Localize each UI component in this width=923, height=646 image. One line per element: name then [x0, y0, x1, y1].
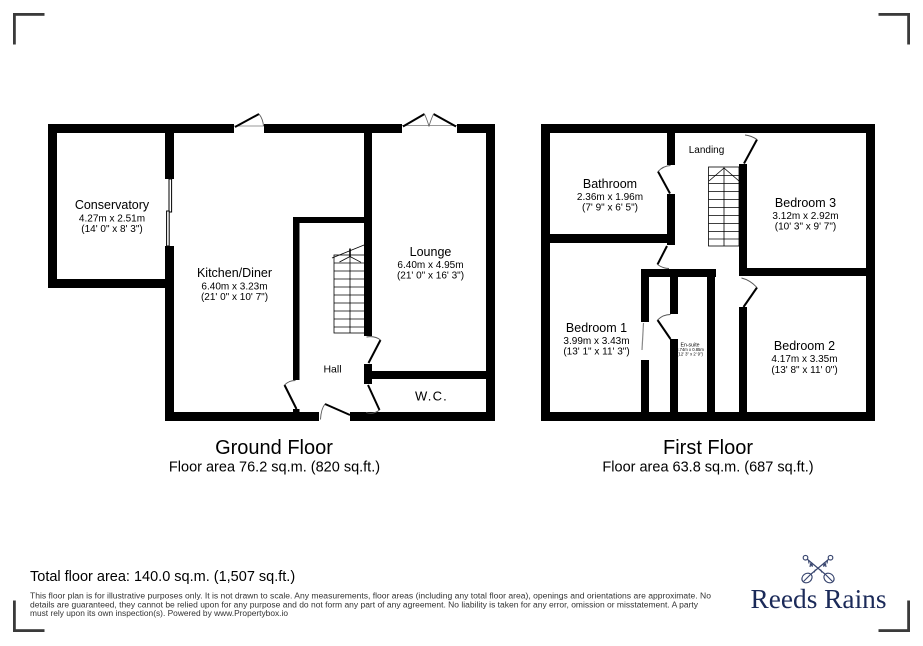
svg-text:3.12m x 2.92m: 3.12m x 2.92m: [772, 211, 838, 222]
svg-text:(13' 1" x 11' 3"): (13' 1" x 11' 3"): [563, 347, 629, 358]
svg-text:Bedroom 1: Bedroom 1: [566, 321, 627, 335]
svg-text:must rely upon its own inspect: must rely upon its own inspection(s). Po…: [30, 609, 289, 618]
svg-text:Conservatory: Conservatory: [75, 198, 150, 212]
svg-text:(12' 3" x 2' 9"): (12' 3" x 2' 9"): [677, 352, 703, 357]
svg-text:Landing: Landing: [689, 145, 725, 156]
svg-text:Bedroom 2: Bedroom 2: [774, 339, 835, 353]
svg-text:(13' 8" x 11' 0"): (13' 8" x 11' 0"): [771, 365, 837, 376]
svg-text:Total floor area: 140.0 sq.m.: Total floor area: 140.0 sq.m. (1,507 sq.…: [30, 569, 295, 585]
svg-text:6.40m x 3.23m: 6.40m x 3.23m: [201, 282, 267, 293]
svg-text:Kitchen/Diner: Kitchen/Diner: [197, 266, 272, 280]
svg-text:6.40m x 4.95m: 6.40m x 4.95m: [397, 260, 463, 271]
svg-text:(7' 9" x 6' 5"): (7' 9" x 6' 5"): [582, 203, 638, 214]
svg-text:First Floor: First Floor: [663, 437, 753, 459]
svg-text:(21' 0" x 10' 7"): (21' 0" x 10' 7"): [201, 292, 268, 303]
svg-text:Hall: Hall: [323, 364, 341, 376]
svg-text:W.C.: W.C.: [415, 389, 448, 404]
svg-text:(14' 0" x 8' 3"): (14' 0" x 8' 3"): [81, 224, 143, 235]
svg-text:2.36m x 1.96m: 2.36m x 1.96m: [577, 192, 643, 203]
svg-text:4.27m x 2.51m: 4.27m x 2.51m: [79, 214, 145, 225]
svg-text:details are guaranteed, they c: details are guaranteed, they cannot be r…: [30, 600, 698, 609]
svg-text:Ground Floor: Ground Floor: [215, 437, 333, 459]
svg-text:Bedroom 3: Bedroom 3: [775, 196, 836, 210]
svg-text:(21' 0" x 16' 3"): (21' 0" x 16' 3"): [397, 271, 464, 282]
svg-text:Floor area 63.8 sq.m. (687 sq.: Floor area 63.8 sq.m. (687 sq.ft.): [602, 460, 813, 476]
svg-text:3.99m x 3.43m: 3.99m x 3.43m: [563, 336, 629, 347]
svg-text:Bathroom: Bathroom: [583, 177, 637, 191]
svg-text:4.17m x 3.35m: 4.17m x 3.35m: [771, 354, 837, 365]
svg-text:(10' 3" x 9' 7"): (10' 3" x 9' 7"): [775, 222, 837, 233]
svg-text:This floor plan is for illustr: This floor plan is for illustrative purp…: [30, 592, 712, 601]
svg-text:Floor area 76.2 sq.m. (820 sq.: Floor area 76.2 sq.m. (820 sq.ft.): [169, 460, 380, 476]
svg-text:Reeds Rains: Reeds Rains: [751, 583, 887, 614]
svg-text:Lounge: Lounge: [410, 245, 452, 259]
